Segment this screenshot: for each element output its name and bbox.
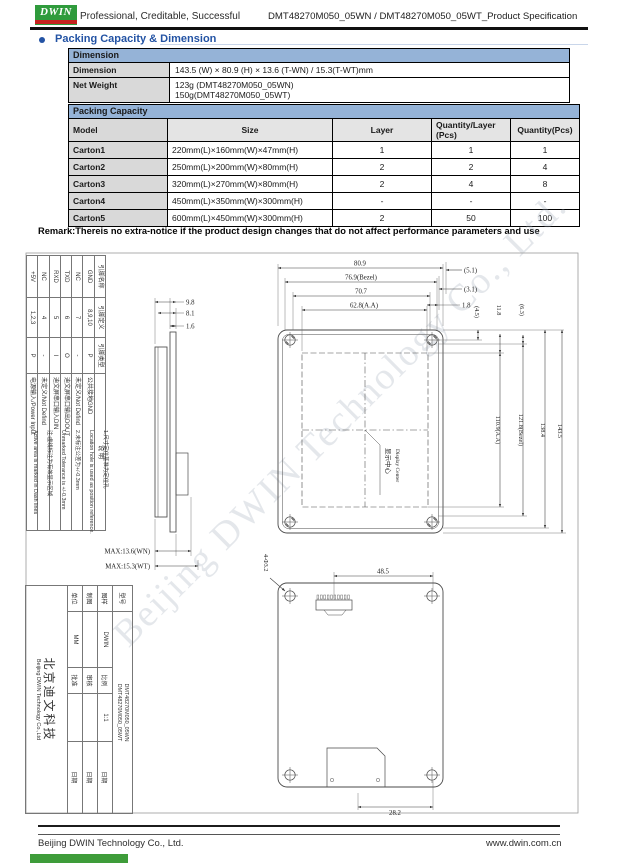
dimension-table: Dimension Dimension 143.5 (W) × 80.9 (H)… (68, 48, 570, 103)
packing-capacity-table: Packing Capacity Model Size Layer Quanti… (68, 104, 580, 227)
next-page-logo-fragment (30, 854, 128, 863)
dim-48-5: 48.5 (377, 569, 389, 576)
document-title: DMT48270M050_05WN / DMT48270M050_05WT_Pr… (268, 11, 577, 22)
back-view (278, 583, 443, 787)
dimension-lines (155, 268, 562, 807)
table-row: Carton3 320mm(L)×270mm(W)×80mm(H) 2 4 8 (69, 176, 579, 193)
footer-rule-bottom (38, 834, 560, 835)
front-view (278, 330, 443, 533)
col-qty-layer: Quantity/Layer (Pcs) (432, 119, 511, 141)
cell-size: 320mm(L)×270mm(W)×80mm(H) (168, 176, 333, 192)
cell-qty: 1 (511, 142, 579, 158)
cell-model: Carton5 (69, 210, 168, 226)
cell-layer: 1 (333, 142, 432, 158)
dim-3-1: (3.1) (464, 287, 477, 294)
display-center-label-en: Display Center (394, 449, 400, 482)
dim-80-9: 80.9 (354, 261, 366, 268)
net-weight-line2: 150g(DMT48270M050_05WT) (175, 90, 564, 100)
cell-qty-layer: 50 (432, 210, 511, 226)
table-row: 北京迪文科技 Beijing DWIN Technology Co.,Ltd (26, 586, 68, 814)
cell-model: Carton4 (69, 193, 168, 209)
dim-62-8-aa: 62.8(A.A) (350, 303, 378, 310)
dim-9-8: 9.8 (186, 300, 195, 307)
dim-4-5: (4.5) (473, 306, 480, 318)
model-numbers: DMT48270M050_05WN DMT48270M050_05WT (113, 612, 133, 814)
dim-28-2: 28.2 (389, 810, 401, 817)
dim-hole-callout: 4-Φ3.2 (262, 554, 269, 571)
screw-hole-icon (424, 514, 440, 530)
cell-model: Carton3 (69, 176, 168, 192)
screw-hole-icon (282, 767, 298, 783)
dim-138-4: 138.4 (539, 423, 546, 437)
dim-5-1: (5.1) (464, 268, 477, 275)
net-weight-label: Net Weight (69, 78, 170, 102)
dim-110-9-aa: 110.9(A.A) (494, 416, 501, 444)
dim-11-8: 11.8 (495, 305, 502, 316)
cell-layer: 2 (333, 210, 432, 226)
cell-qty-layer: - (432, 193, 511, 209)
extension-lines (155, 262, 566, 810)
dim-8-1: 8.1 (186, 311, 195, 318)
serial-connector (316, 600, 352, 610)
cell-qty: - (511, 193, 579, 209)
cell-size: 600mm(L)×450mm(W)×300mm(H) (168, 210, 333, 226)
cell-model: Carton1 (69, 142, 168, 158)
dim-121-8-bezel: 121.8(Bezel) (517, 414, 524, 446)
table-row: Carton4 450mm(L)×350mm(W)×300mm(H) - - - (69, 193, 579, 210)
table-row: Carton5 600mm(L)×450mm(W)×300mm(H) 2 50 … (69, 210, 579, 226)
footer-rule-top (38, 825, 560, 827)
cell-qty-layer: 4 (432, 176, 511, 192)
cell-layer: - (333, 193, 432, 209)
footer-website: www.dwin.com.cn (486, 838, 562, 849)
dim-max-wn: MAX:13.6(WN) (105, 549, 151, 556)
display-center-leader (365, 430, 380, 495)
cell-qty-layer: 2 (432, 159, 511, 175)
cell-qty: 4 (511, 159, 579, 175)
col-size: Size (168, 119, 333, 141)
header-tagline: Professional, Creditable, Successful (80, 11, 240, 22)
packing-table-title: Packing Capacity (69, 105, 579, 119)
net-weight-value: 123g (DMT48270M050_05WN) 150g(DMT48270M0… (170, 78, 569, 102)
table-row: Carton1 220mm(L)×160mm(W)×47mm(H) 1 1 1 (69, 142, 579, 159)
dim-max-wt: MAX:15.3(WT) (105, 564, 150, 571)
company-name-en: Beijing DWIN Technology Co.,Ltd (35, 587, 41, 812)
footer-company: Beijing DWIN Technology Co., Ltd. (38, 838, 184, 849)
table-row: Carton2 250mm(L)×200mm(W)×80mm(H) 2 2 4 (69, 159, 579, 176)
cell-size: 220mm(L)×160mm(W)×47mm(H) (168, 142, 333, 158)
cell-size: 250mm(L)×200mm(W)×80mm(H) (168, 159, 333, 175)
remark-text: Remark:Thereis no extra-notice if the pr… (38, 226, 540, 236)
dim-143-5: 143.5 (556, 424, 563, 438)
cell-qty-layer: 1 (432, 142, 511, 158)
header-rule (30, 27, 588, 30)
section-underline (160, 44, 588, 45)
display-center-label-cn: 显示中心 (384, 448, 393, 475)
table-row: 型号 DMT48270M050_05WN DMT48270M050_05WT (113, 586, 133, 814)
company-name-cn: 北京迪文科技 (41, 587, 58, 812)
col-model: Model (69, 119, 168, 141)
screw-hole-icon (282, 514, 298, 530)
company-cell: 北京迪文科技 Beijing DWIN Technology Co.,Ltd (26, 586, 68, 814)
dim-6-3: (6.3) (518, 304, 525, 316)
col-qty: Quantity(Pcs) (511, 119, 579, 141)
cell-model: Carton2 (69, 159, 168, 175)
dimension-label: Dimension (69, 63, 170, 77)
screw-hole-icon (424, 767, 440, 783)
packing-table-header-row: Model Size Layer Quantity/Layer (Pcs) Qu… (69, 119, 579, 142)
dim-76-9-bezel: 76.9(Bezel) (345, 275, 377, 282)
dim-1-8: 1.8 (462, 303, 471, 310)
cell-qty: 8 (511, 176, 579, 192)
table-row: 单位 MM 批准 日期 (68, 586, 83, 814)
bottom-block (327, 748, 385, 787)
dimension-table-title: Dimension (69, 49, 569, 63)
net-weight-line1: 123g (DMT48270M050_05WN) (175, 80, 564, 90)
cell-layer: 2 (333, 159, 432, 175)
table-row: 制图 审核 日期 (83, 586, 98, 814)
title-block: 型号 DMT48270M050_05WN DMT48270M050_05WT 图… (25, 585, 133, 814)
dim-70-7: 70.7 (355, 289, 367, 296)
table-row: Net Weight 123g (DMT48270M050_05WN) 150g… (69, 78, 569, 102)
side-view (155, 332, 188, 532)
dwin-logo-red-stripe (35, 20, 77, 24)
dim-1-6: 1.6 (186, 324, 195, 331)
dimension-value: 143.5 (W) × 80.9 (H) × 13.6 (T-WN) / 15.… (170, 63, 569, 77)
dwin-logo-text: DWIN (40, 6, 72, 18)
drawing-notes: 1.尺寸定位基准为定位孔 Location hole is used as po… (28, 430, 112, 548)
connector-pins (317, 595, 349, 599)
cell-size: 450mm(L)×350mm(W)×300mm(H) (168, 193, 333, 209)
col-layer: Layer (333, 119, 432, 141)
cell-qty: 100 (511, 210, 579, 226)
dwin-logo: DWIN (35, 5, 77, 25)
table-row: 图样 DWIN 比例 1:1 日期 (98, 586, 113, 814)
table-row: Dimension 143.5 (W) × 80.9 (H) × 13.6 (T… (69, 63, 569, 78)
cell-layer: 2 (333, 176, 432, 192)
section-bullet-icon (39, 37, 45, 43)
screw-hole-icon (424, 588, 440, 604)
